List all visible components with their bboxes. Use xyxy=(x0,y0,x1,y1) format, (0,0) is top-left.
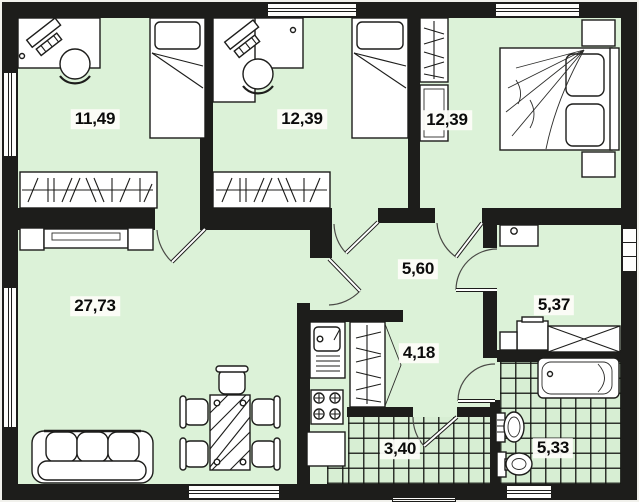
area-label-bedroom1: 11,49 xyxy=(71,109,120,129)
area-label-bedroom2: 12,39 xyxy=(277,109,327,129)
area-label-entry-hall: 3,40 xyxy=(380,439,420,459)
stove-icon xyxy=(311,390,343,424)
area-label-living-room: 27,73 xyxy=(70,296,120,316)
bathroom-sink-icon xyxy=(500,225,538,246)
wardrobe-icon xyxy=(213,172,330,208)
counter-icon xyxy=(548,326,620,352)
area-label-bathroom: 5,37 xyxy=(534,295,574,315)
bathtub-icon xyxy=(538,358,619,398)
furniture-layer xyxy=(0,0,639,502)
washing-machine-icon xyxy=(517,317,548,350)
door-bedroom1 xyxy=(157,229,205,262)
toilet-icon xyxy=(497,452,532,477)
area-label-wc: 5,33 xyxy=(533,438,573,458)
area-label-bedroom3: 12,39 xyxy=(422,110,472,130)
kitchen-sink-icon xyxy=(310,322,345,378)
office-chair-icon xyxy=(60,49,90,83)
kitchen-cabinet-icon xyxy=(307,432,345,466)
sofa-icon xyxy=(32,431,153,483)
double-bed-icon xyxy=(500,48,619,150)
door-bedroom3 xyxy=(437,223,482,257)
wardrobe-icon xyxy=(20,172,157,208)
washbasin-icon xyxy=(496,412,524,442)
closet-icon xyxy=(420,18,448,82)
door-bathroom xyxy=(456,249,497,290)
door-wc xyxy=(458,364,495,401)
area-label-kitchen: 4,18 xyxy=(399,343,439,363)
single-bed-icon xyxy=(352,18,408,138)
cabinet-icon xyxy=(500,332,517,350)
closet-icon xyxy=(350,322,401,407)
single-bed-icon xyxy=(150,18,205,138)
tv-stand-icon xyxy=(20,228,153,250)
dining-table-icon xyxy=(210,395,250,470)
floor-plan: 11,49 12,39 12,39 5,60 27,73 5,37 4,18 3… xyxy=(0,0,639,502)
door-living-hallway xyxy=(329,259,360,305)
door-bedroom2 xyxy=(334,222,378,253)
area-label-hallway: 5,60 xyxy=(398,259,438,279)
